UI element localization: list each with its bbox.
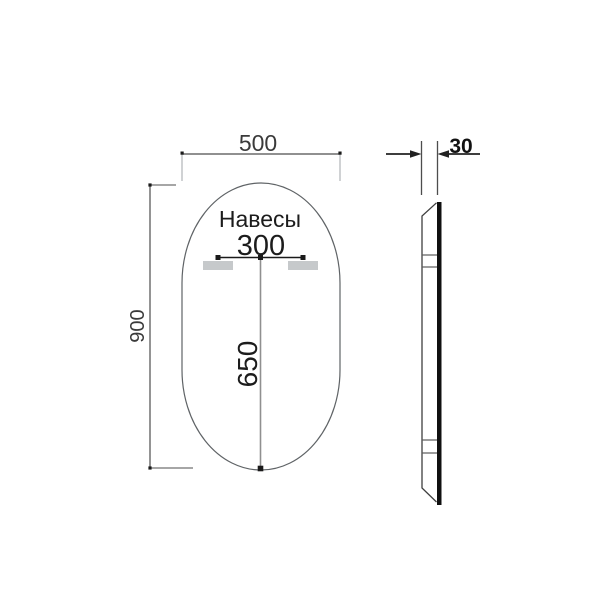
profile-back-outline [422, 203, 437, 502]
depth-dim-label: 30 [449, 135, 472, 158]
width-dim-tick-right [338, 152, 341, 155]
depth-dimension: 30 [386, 135, 480, 195]
height-dimension: 900 [127, 183, 193, 469]
drawing-svg: 500 900 Навесы 300 [0, 0, 600, 600]
height-dim-tick-bottom [148, 466, 151, 469]
front-view: 500 900 Навесы 300 [127, 130, 342, 471]
height-dim-label: 900 [127, 309, 149, 342]
depth-arrow-right [438, 150, 450, 157]
hangers-label: Навесы [219, 206, 301, 232]
width-dim-label: 500 [239, 130, 277, 156]
hanger-spacing-dimension: 300 [216, 230, 306, 262]
hanger-spacing-marker-right [301, 255, 306, 260]
profile-glass-edge [437, 202, 442, 505]
hanger-pad-left [203, 261, 233, 270]
width-dimension: 500 [181, 130, 342, 181]
height-dim-tick-top [148, 183, 151, 186]
hanger-height-dimension: 650 [232, 260, 263, 471]
width-dim-tick-left [181, 152, 184, 155]
hanger-pad-right [288, 261, 318, 270]
mirror-technical-drawing: 500 900 Навесы 300 [0, 0, 600, 600]
hanger-height-marker-bottom [258, 466, 264, 472]
hanger-height-label: 650 [232, 341, 263, 388]
hanger-spacing-marker-center [258, 255, 263, 260]
depth-arrow-left [410, 150, 422, 157]
hanger-spacing-marker-left [216, 255, 221, 260]
side-view: 30 [386, 135, 480, 505]
